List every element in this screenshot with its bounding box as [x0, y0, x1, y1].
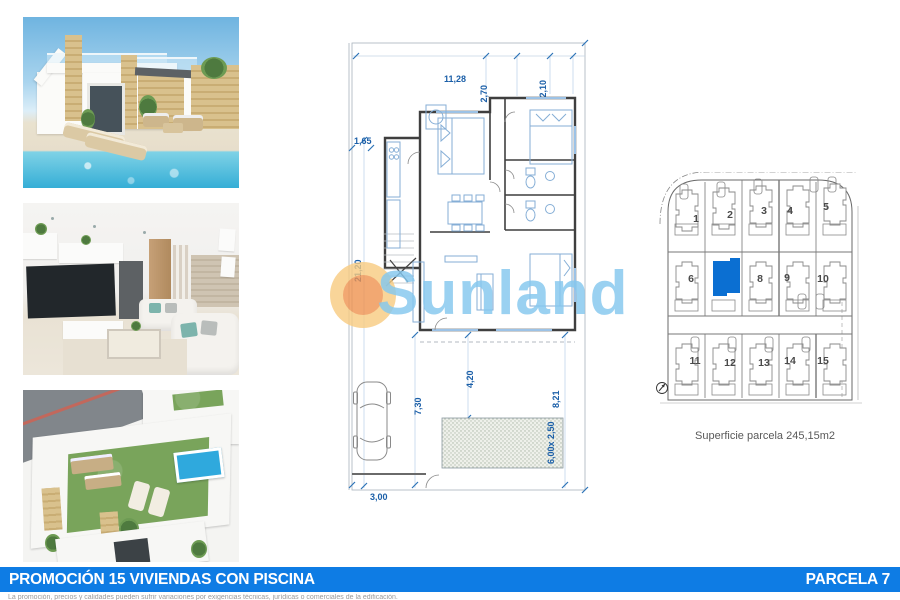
photo-window — [87, 83, 125, 135]
parcel-number: 15 — [817, 355, 829, 367]
dim-left-setback: 1,65 — [354, 136, 372, 146]
parcel-number: 3 — [761, 205, 767, 217]
photo-spotlight — [93, 225, 96, 228]
photo-shape — [65, 35, 82, 121]
banner-title: PROMOCIÓN 15 VIVIENDAS CON PISCINA — [9, 571, 315, 589]
photo-cushion — [200, 320, 217, 336]
dim-garden-mid: 4,20 — [465, 370, 475, 388]
dim-top-seg2: 2,10 — [538, 80, 548, 98]
parcel-number: 10 — [817, 273, 829, 285]
pool — [442, 418, 563, 468]
photo-cushion — [149, 303, 161, 313]
dim-garden-left: 7,30 — [413, 397, 423, 415]
parcel-number: 11 — [689, 355, 700, 367]
photo-rooftop-solarium — [23, 390, 239, 562]
parcel-number: 14 — [784, 355, 796, 367]
parcel-number: 13 — [758, 357, 770, 369]
promotion-banner: PROMOCIÓN 15 VIVIENDAS CON PISCINA PARCE… — [0, 567, 900, 592]
dim-top-seg1: 2,70 — [479, 85, 489, 103]
photo-pool — [23, 151, 239, 188]
dim-top-width: 11,28 — [444, 74, 466, 84]
parcel-number: 8 — [757, 273, 763, 285]
parcel-number: 9 — [784, 272, 790, 284]
photo-tv — [26, 263, 116, 318]
photo-pillar — [42, 487, 63, 530]
north-arrow — [657, 383, 668, 394]
photo-frame — [218, 228, 235, 251]
parcel-number: 4 — [787, 205, 793, 217]
parcel-number: 6 — [688, 273, 694, 285]
parcel-number: 5 — [823, 201, 829, 213]
photo-cabinet — [23, 233, 57, 259]
photo-living-room — [23, 203, 239, 375]
parcel-number: 2 — [727, 209, 733, 221]
photo-plant — [191, 540, 207, 558]
parcel-number: 12 — [724, 357, 736, 369]
pool-size-label: 6,00x 2,50 — [546, 421, 556, 464]
photo-window — [114, 538, 151, 562]
photo-spotlight — [51, 217, 54, 220]
car — [354, 382, 391, 460]
parcel-number: 1 — [693, 213, 699, 225]
parcel-area-caption: Superficie parcela 245,15m2 — [695, 430, 835, 442]
disclaimer-text: La promoción, precios y calidades pueden… — [8, 594, 478, 600]
site-plan: 1 2 3 4 5 6 8 9 10 11 12 13 14 15 — [650, 172, 890, 407]
photo-shelf — [59, 243, 123, 263]
photo-jacuzzi — [173, 447, 224, 483]
dim-garden-right: 8,21 — [551, 390, 561, 408]
photo-villa-exterior — [23, 17, 239, 188]
banner-parcel-label: PARCELA 7 — [806, 571, 890, 589]
parcel-7-highlight — [713, 258, 740, 296]
photo-cushion — [180, 322, 198, 338]
photo-plant — [35, 223, 47, 235]
brochure-page: 11,28 2,70 2,10 1,65 21,20 7,30 4,20 8,2… — [0, 0, 900, 600]
photo-plant — [81, 235, 91, 245]
dim-bottom: 3,00 — [370, 492, 388, 502]
photo-palm — [201, 57, 227, 79]
photo-spotlight — [143, 231, 146, 234]
photo-plant — [131, 321, 141, 331]
photo-coffee-table — [107, 329, 161, 359]
photo-table — [163, 123, 183, 133]
photo-frame — [220, 257, 235, 278]
photo-cushion — [165, 303, 177, 313]
sunland-watermark: Sunland — [377, 258, 629, 329]
